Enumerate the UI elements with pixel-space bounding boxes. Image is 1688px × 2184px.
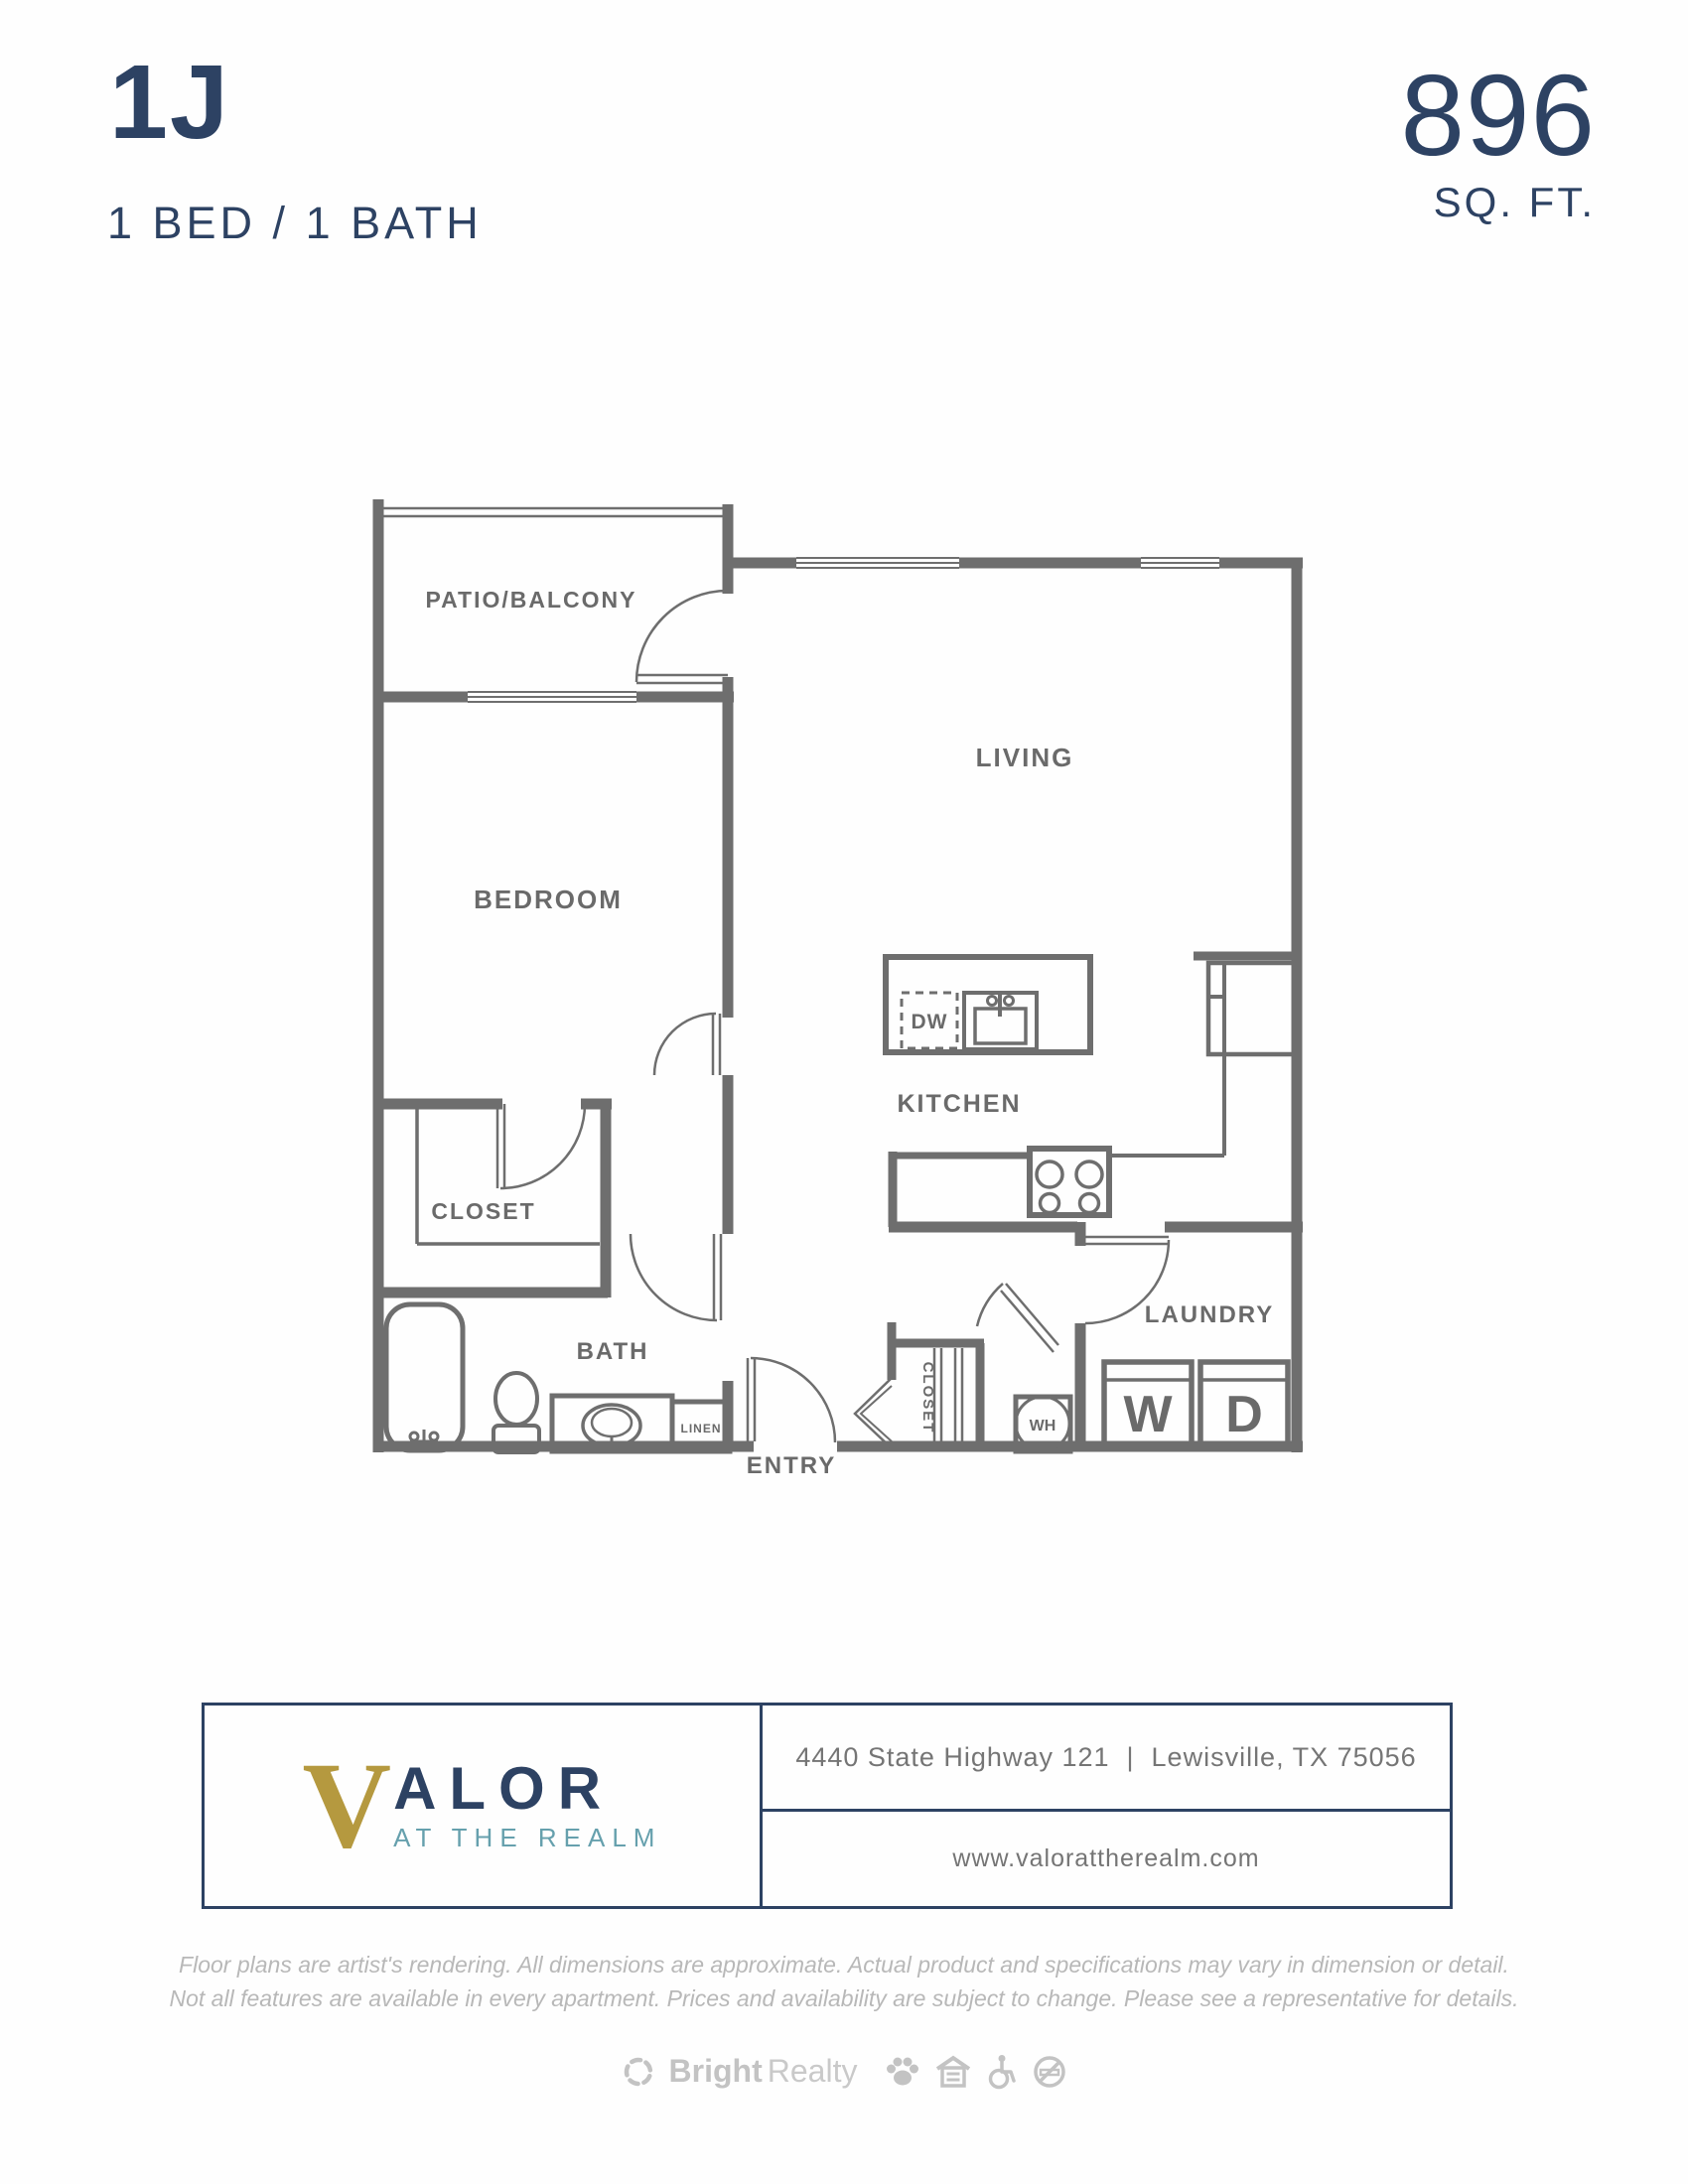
- fixture-label-dryer: D: [1225, 1386, 1263, 1443]
- room-label-linen: LINEN: [681, 1422, 722, 1435]
- unit-name: 1J: [109, 50, 230, 155]
- wheelchair-icon: [985, 2054, 1019, 2090]
- doors: [497, 591, 1169, 1448]
- logo-initial: V: [303, 1758, 392, 1854]
- property-website: www.valorattherealm.com: [763, 1812, 1450, 1906]
- kitchen-island: [886, 957, 1090, 1052]
- stove: [1030, 1149, 1109, 1215]
- kitchen-counter-edge: [1109, 1056, 1224, 1156]
- equal-housing-icon: [934, 2055, 972, 2089]
- room-label-bedroom: BEDROOM: [474, 885, 623, 914]
- property-address: 4440 State Highway 121 | Lewisville, TX …: [763, 1706, 1450, 1809]
- bedroom-window: [468, 692, 636, 702]
- kitchen-sink: [964, 993, 1037, 1049]
- disclaimer: Floor plans are artist's rendering. All …: [0, 1948, 1688, 2015]
- water-heater-closet-door: [977, 1284, 1058, 1352]
- logo-tagline: AT THE REALM: [393, 1823, 661, 1853]
- patio-door: [636, 591, 728, 683]
- room-label-entry: ENTRY: [747, 1452, 836, 1479]
- bathtub: [386, 1304, 463, 1450]
- disclaimer-line-1: Floor plans are artist's rendering. All …: [0, 1948, 1688, 1981]
- brand-row: Bright Realty: [0, 2053, 1688, 2090]
- living-window-right: [1141, 558, 1219, 568]
- fixture-label-washer: W: [1123, 1386, 1173, 1443]
- room-label-patio: PATIO/BALCONY: [426, 587, 637, 613]
- no-smoking-icon: [1032, 2054, 1067, 2090]
- area-block: 896 SQ. FT.: [1400, 58, 1596, 226]
- contact-cell: 4440 State Highway 121 | Lewisville, TX …: [763, 1706, 1450, 1906]
- room-label-bath: BATH: [577, 1338, 649, 1365]
- entry-closet-sliding-doors: [934, 1348, 962, 1444]
- refrigerator: [1208, 963, 1294, 1054]
- floor-plan: PATIO/BALCONY LIVING BEDROOM KITCHEN CLO…: [359, 488, 1311, 1481]
- logo-wordmark: ALOR: [393, 1759, 661, 1819]
- bedroom-closet-door: [497, 1104, 585, 1188]
- brand-name-light: Realty: [768, 2053, 858, 2090]
- paw-icon: [884, 2055, 921, 2089]
- room-label-entry-closet: CLOSET: [919, 1362, 936, 1434]
- room-label-kitchen: KITCHEN: [897, 1090, 1021, 1118]
- brand-swirl-icon: [621, 2054, 656, 2090]
- bath-door: [631, 1234, 721, 1320]
- area-unit: SQ. FT.: [1400, 179, 1596, 226]
- property-logo: V ALOR AT THE REALM: [205, 1706, 760, 1906]
- brand-name-bold: Bright: [669, 2053, 763, 2090]
- bedroom-door: [654, 1014, 720, 1075]
- toilet: [493, 1373, 539, 1452]
- footer-info-box: V ALOR AT THE REALM 4440 State Highway 1…: [202, 1703, 1453, 1909]
- living-window-left: [796, 558, 959, 568]
- fixture-label-water-heater: WH: [1030, 1418, 1056, 1434]
- entry-closet-bifold-door: [855, 1378, 892, 1448]
- area-value: 896: [1400, 58, 1596, 173]
- room-label-living: LIVING: [976, 743, 1074, 772]
- patio-railing: [382, 508, 723, 516]
- room-label-bedroom-closet: CLOSET: [431, 1198, 535, 1224]
- fixture-label-dishwasher: DW: [912, 1011, 948, 1033]
- room-label-laundry: LAUNDRY: [1145, 1301, 1274, 1328]
- disclaimer-line-2: Not all features are available in every …: [0, 1981, 1688, 2015]
- unit-spec: 1 BED / 1 BATH: [107, 197, 483, 250]
- entry-door: [748, 1358, 835, 1442]
